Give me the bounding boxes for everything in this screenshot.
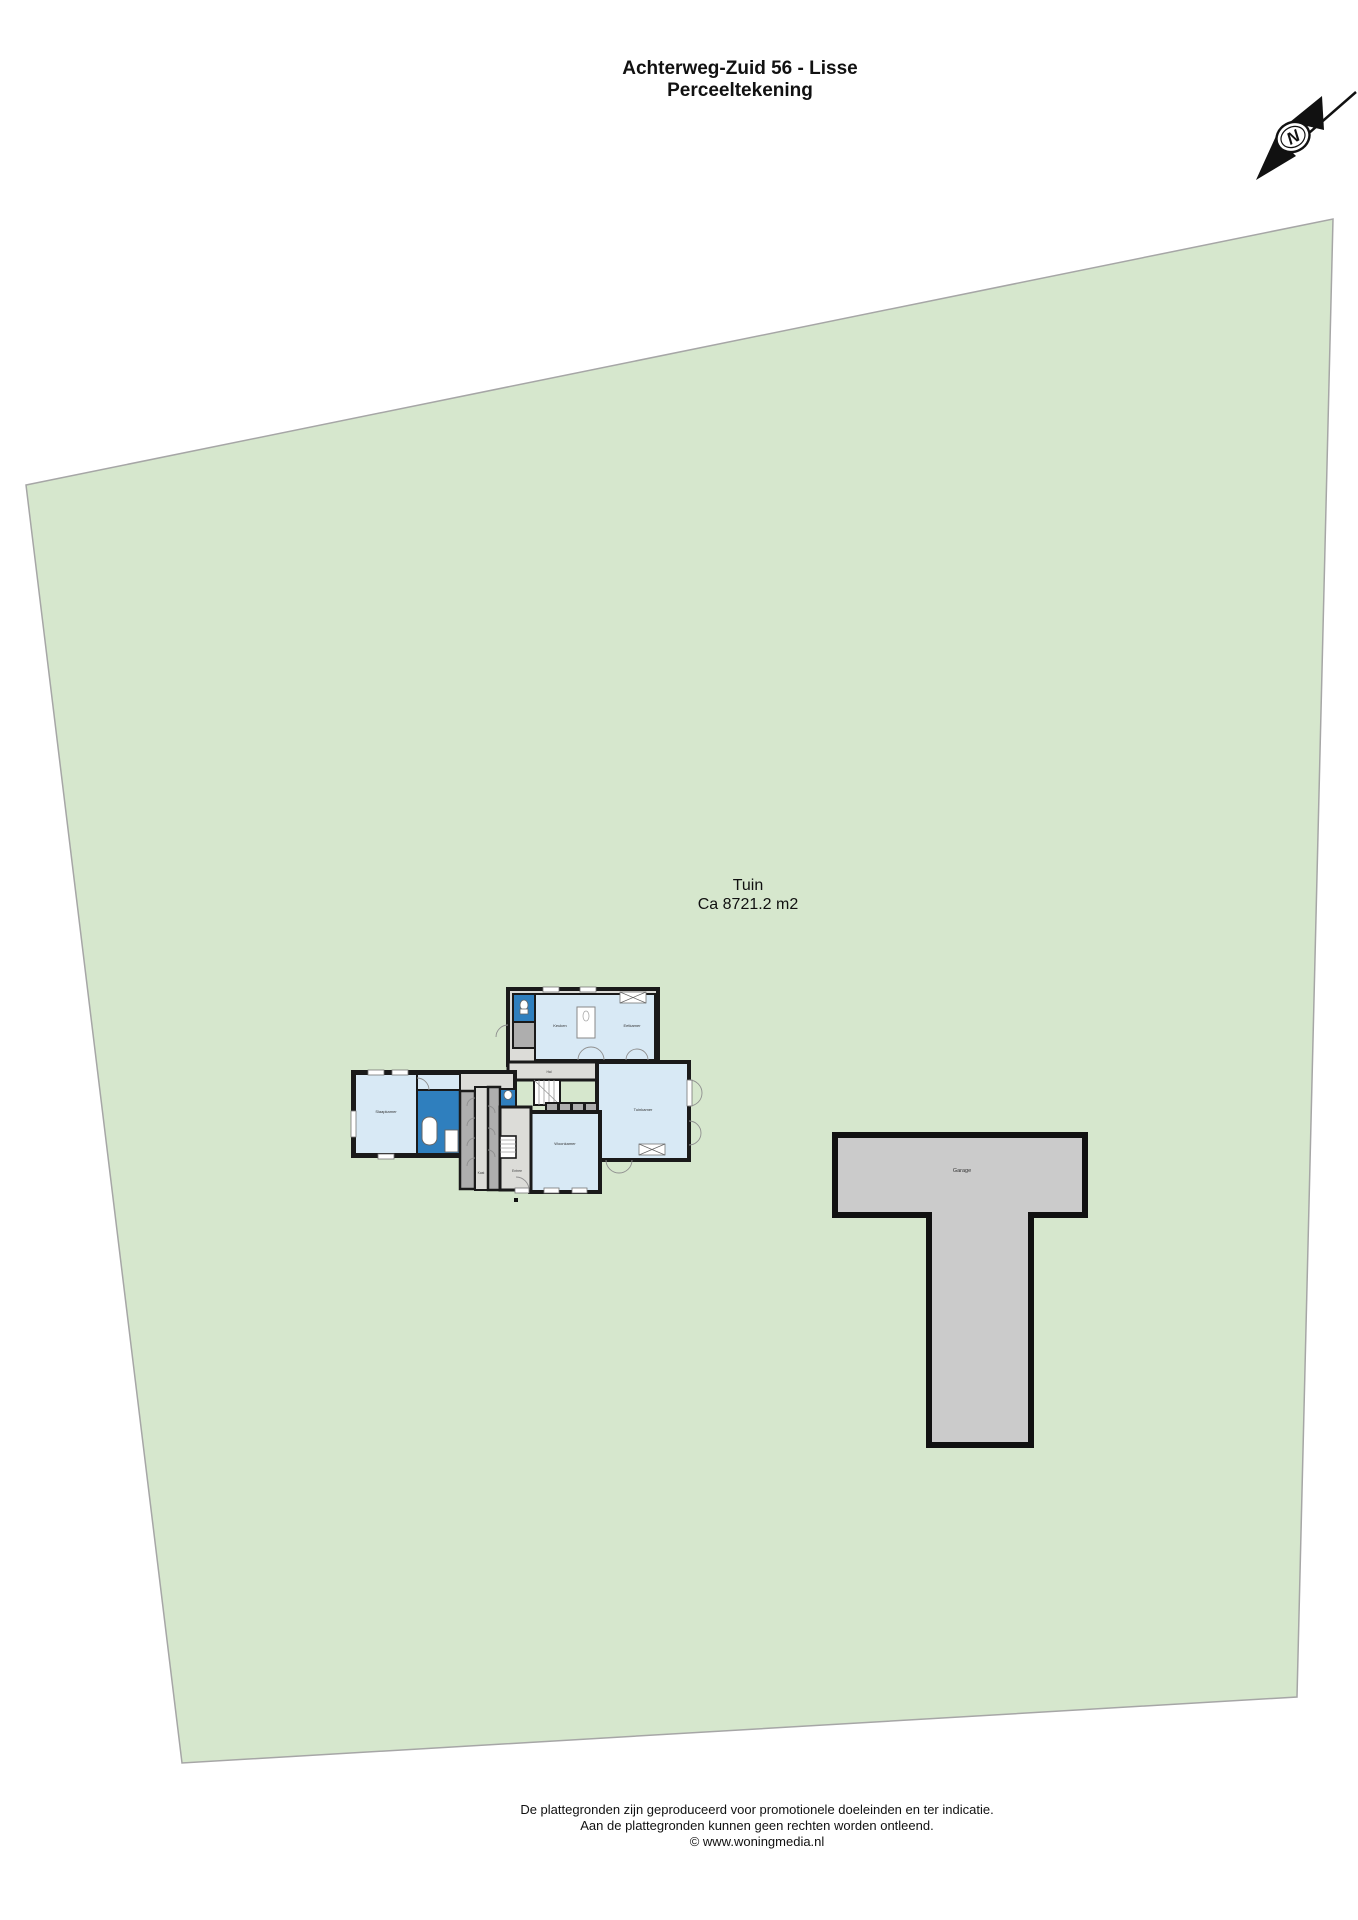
house-floorplan: Keuken Eetkamer Tuinkamer Woonkamer Slaa… xyxy=(348,983,713,1223)
garden-name: Tuin xyxy=(698,876,799,895)
hall-strip xyxy=(508,1062,597,1080)
label-entree: Entree xyxy=(512,1169,522,1173)
title-address: Achterweg-Zuid 56 - Lisse xyxy=(622,58,857,80)
bedroom xyxy=(355,1074,417,1154)
garage-building: Garage xyxy=(830,1128,1090,1453)
label-kast: Kast xyxy=(478,1171,485,1175)
footer-line-2: Aan de plattegronden kunnen geen rechten… xyxy=(520,1818,993,1834)
toilet-icon xyxy=(520,1000,528,1010)
perceeltekening-page: Achterweg-Zuid 56 - Lisse Perceeltekenin… xyxy=(0,0,1358,1920)
compass-icon: N xyxy=(1232,82,1358,200)
page-title: Achterweg-Zuid 56 - Lisse Perceeltekenin… xyxy=(622,58,857,102)
wardrobe-strip-2 xyxy=(488,1087,500,1190)
entry-marker xyxy=(514,1198,518,1202)
label-garage: Garage xyxy=(953,1168,971,1174)
footer-line-1: De plattegronden zijn geproduceerd voor … xyxy=(520,1802,993,1818)
label-woonkamer: Woonkamer xyxy=(554,1141,576,1146)
parcel-plot xyxy=(0,0,1358,1920)
toilet-tank-icon xyxy=(520,1009,528,1014)
footer-copyright: © www.woningmedia.nl xyxy=(520,1834,993,1850)
footer-disclaimer: De plattegronden zijn geproduceerd voor … xyxy=(520,1802,993,1850)
closet-top xyxy=(513,1022,535,1048)
kitchen-island-icon xyxy=(577,1007,595,1038)
bathtub-icon xyxy=(422,1117,437,1145)
stairs-icon-2 xyxy=(500,1136,516,1158)
garage-outline xyxy=(835,1135,1085,1445)
title-subtitle: Perceeltekening xyxy=(622,80,857,102)
label-hal: Hal xyxy=(546,1070,551,1074)
living-room xyxy=(530,1112,600,1192)
garden-area: Ca 8721.2 m2 xyxy=(698,895,799,914)
garden-label: Tuin Ca 8721.2 m2 xyxy=(698,876,799,914)
shower-icon xyxy=(445,1130,458,1152)
dressing-area xyxy=(417,1074,460,1090)
label-slaapkamer: Slaapkamer xyxy=(375,1109,397,1114)
wardrobe-strip-1 xyxy=(460,1091,475,1189)
label-tuinkamer: Tuinkamer xyxy=(634,1107,653,1112)
toilet-icon-2 xyxy=(504,1091,512,1100)
label-eetkamer: Eetkamer xyxy=(623,1023,641,1028)
label-keuken: Keuken xyxy=(553,1023,567,1028)
